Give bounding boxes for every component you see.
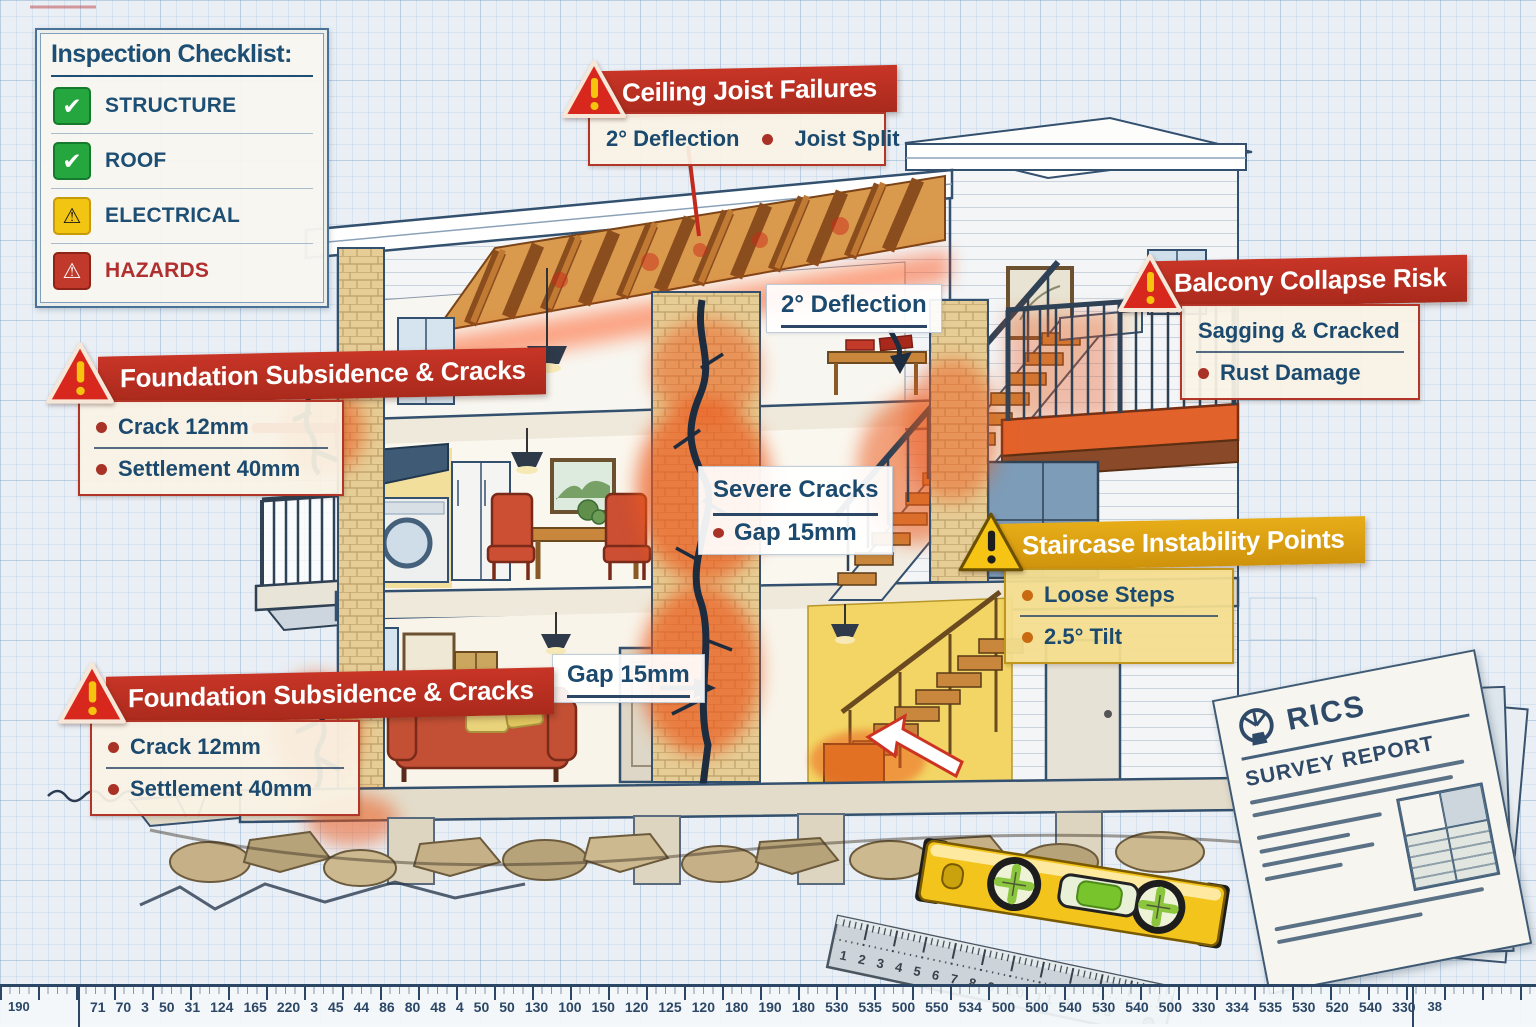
foundation-upper-panel: Crack 12mm Settlement 40mm bbox=[78, 400, 344, 496]
ceiling-joist-banner: Ceiling Joist Failures bbox=[600, 65, 897, 118]
scale-number: 50 bbox=[499, 999, 515, 1015]
staircase-panel: Loose Steps 2.5° Tilt bbox=[1004, 568, 1234, 664]
scale-number: 500 bbox=[1159, 999, 1182, 1015]
scale-number: 70 bbox=[116, 999, 132, 1015]
scale-number: 48 bbox=[430, 999, 446, 1015]
soil-crack bbox=[140, 882, 525, 909]
scale-number: 530 bbox=[1092, 999, 1115, 1015]
scale-number: 31 bbox=[185, 999, 201, 1015]
checklist-label: ELECTRICAL bbox=[105, 204, 240, 228]
scale-number: 534 bbox=[959, 999, 982, 1015]
scale-number: 334 bbox=[1225, 999, 1248, 1015]
margin-line-right bbox=[1412, 987, 1414, 1027]
scale-number: 130 bbox=[525, 999, 548, 1015]
rust-label: Rust Damage bbox=[1220, 360, 1361, 386]
checklist-row: ELECTRICAL bbox=[51, 189, 313, 244]
scale-number: 80 bbox=[405, 999, 421, 1015]
scale-number: 3 bbox=[141, 999, 149, 1015]
scale-number: 330 bbox=[1192, 999, 1215, 1015]
bullet-icon bbox=[1022, 632, 1033, 643]
balcony-panel: Sagging & Cracked Rust Damage bbox=[1180, 304, 1420, 400]
staircase-banner: Staircase Instability Points bbox=[1000, 516, 1365, 571]
deflection-value: 2° Deflection bbox=[606, 126, 740, 152]
bullet-icon bbox=[762, 134, 773, 145]
scale-number: 500 bbox=[892, 999, 915, 1015]
foundation-lower-banner: Foundation Subsidence & Cracks bbox=[106, 667, 554, 723]
checklist-label: STRUCTURE bbox=[105, 94, 236, 118]
bullet-icon bbox=[96, 464, 107, 475]
banner-title: Ceiling Joist Failures bbox=[622, 72, 877, 108]
survey-report-document: RICS SURVEY REPORT bbox=[1212, 649, 1532, 995]
scale-number: 180 bbox=[792, 999, 815, 1015]
checklist-title: Inspection Checklist: bbox=[51, 40, 313, 77]
checklist-items: STRUCTURE ROOF ELECTRICAL HAZARDS bbox=[51, 79, 313, 298]
scale-number: 540 bbox=[1059, 999, 1082, 1015]
scale-number: 50 bbox=[159, 999, 175, 1015]
scale-number: 500 bbox=[1025, 999, 1048, 1015]
report-table bbox=[1396, 782, 1500, 891]
checklist-row: HAZARDS bbox=[51, 244, 313, 298]
scale-number: 535 bbox=[1259, 999, 1282, 1015]
bullet-icon bbox=[96, 422, 107, 433]
deflection-label: 2° Deflection bbox=[766, 284, 942, 333]
warning-triangle-icon bbox=[560, 58, 628, 122]
sagging-label: Sagging & Cracked bbox=[1198, 318, 1400, 344]
margin-line-left bbox=[78, 987, 80, 1027]
scale-left-edge: 190 bbox=[8, 999, 30, 1014]
bullet-icon bbox=[1198, 368, 1209, 379]
scale-number: 124 bbox=[210, 999, 233, 1015]
scale-number: 100 bbox=[558, 999, 581, 1015]
scale-number: 120 bbox=[625, 999, 648, 1015]
rics-logo-text: RICS bbox=[1284, 689, 1369, 738]
bullet-icon bbox=[713, 528, 724, 538]
bullet-icon bbox=[1022, 590, 1033, 601]
banner-title: Balcony Collapse Risk bbox=[1174, 262, 1447, 299]
scale-number: 4 bbox=[456, 999, 464, 1015]
scale-number: 500 bbox=[992, 999, 1015, 1015]
scale-number: 165 bbox=[243, 999, 266, 1015]
scale-number: 3 bbox=[310, 999, 318, 1015]
scale-number: 530 bbox=[1292, 999, 1315, 1015]
scale-number: 50 bbox=[474, 999, 490, 1015]
crack-value: Crack 12mm bbox=[118, 414, 249, 440]
rics-logo-icon bbox=[1232, 703, 1281, 752]
scale-number: 150 bbox=[592, 999, 615, 1015]
checklist-row: ROOF bbox=[51, 134, 313, 189]
scale-number: 125 bbox=[658, 999, 681, 1015]
foundation-lower-panel: Crack 12mm Settlement 40mm bbox=[90, 720, 360, 816]
tilt-value: 2.5° Tilt bbox=[1044, 624, 1122, 650]
scale-number: 45 bbox=[328, 999, 344, 1015]
settlement-value: Settlement 40mm bbox=[130, 776, 312, 802]
warning-triangle-icon bbox=[44, 340, 116, 408]
scale-number: 530 bbox=[825, 999, 848, 1015]
banner-title: Staircase Instability Points bbox=[1022, 524, 1345, 562]
scale-numbers: 7170350311241652203454486804845050130100… bbox=[90, 999, 1416, 1015]
scale-number: 520 bbox=[1325, 999, 1348, 1015]
crack-value: Crack 12mm bbox=[130, 734, 261, 760]
foundation-upper-banner: Foundation Subsidence & Cracks bbox=[98, 347, 546, 403]
scale-number: 190 bbox=[758, 999, 781, 1015]
bullet-icon bbox=[108, 742, 119, 753]
balcony-banner: Balcony Collapse Risk bbox=[1152, 255, 1467, 309]
status-icon bbox=[53, 197, 91, 235]
status-icon bbox=[53, 142, 91, 180]
status-icon bbox=[53, 252, 91, 290]
status-icon bbox=[53, 87, 91, 125]
settlement-value: Settlement 40mm bbox=[118, 456, 300, 482]
banner-title: Foundation Subsidence & Cracks bbox=[120, 355, 526, 394]
scale-number: 535 bbox=[858, 999, 881, 1015]
inspection-checklist-panel: Inspection Checklist: STRUCTURE ROOF ELE… bbox=[35, 28, 329, 308]
warning-triangle-icon bbox=[1116, 252, 1184, 316]
checklist-label: ROOF bbox=[105, 149, 166, 173]
checklist-label: HAZARDS bbox=[105, 259, 209, 283]
blueprint-sheet: 1 2 3 4 5 6 7 8 9 10 11 12 13 RICS SURVE… bbox=[0, 0, 1536, 1024]
warning-triangle-icon bbox=[956, 510, 1026, 576]
scale-number: 71 bbox=[90, 999, 106, 1015]
scale-number: 86 bbox=[379, 999, 395, 1015]
gap-label: Gap 15mm bbox=[552, 654, 705, 703]
scale-number: 540 bbox=[1125, 999, 1148, 1015]
scale-right-edge: 38 bbox=[1428, 999, 1442, 1014]
scale-number: 540 bbox=[1359, 999, 1382, 1015]
warning-triangle-icon bbox=[56, 660, 128, 728]
scale-number: 44 bbox=[354, 999, 370, 1015]
bottom-scale-bar: 190 717035031124165220345448680484505013… bbox=[0, 984, 1536, 1027]
scale-number: 220 bbox=[277, 999, 300, 1015]
checklist-row: STRUCTURE bbox=[51, 79, 313, 134]
scale-number: 550 bbox=[925, 999, 948, 1015]
scale-number: 180 bbox=[725, 999, 748, 1015]
severe-cracks-label: Severe Cracks Gap 15mm bbox=[698, 466, 893, 555]
ceiling-joist-panel: 2° Deflection Joist Split bbox=[588, 112, 886, 166]
banner-title: Foundation Subsidence & Cracks bbox=[128, 675, 534, 714]
joist-split-label: Joist Split bbox=[795, 126, 900, 152]
loose-steps-label: Loose Steps bbox=[1044, 582, 1175, 608]
scale-number: 120 bbox=[692, 999, 715, 1015]
bullet-icon bbox=[108, 784, 119, 795]
